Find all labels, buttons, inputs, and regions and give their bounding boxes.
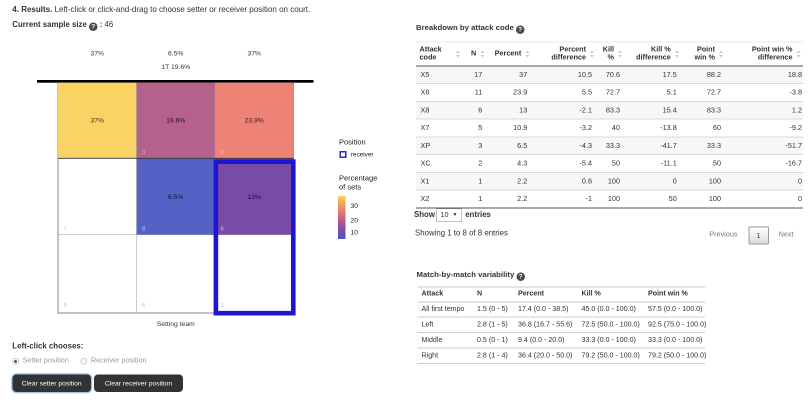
svg-text:37%: 37% xyxy=(247,51,261,58)
svg-text:1: 1 xyxy=(221,303,224,309)
svg-text:2: 2 xyxy=(221,150,224,156)
svg-text:6.5%: 6.5% xyxy=(168,194,183,201)
svg-text:Setting team: Setting team xyxy=(157,321,195,328)
svg-text:6.5%: 6.5% xyxy=(168,51,183,58)
svg-text:1T 19.6%: 1T 19.6% xyxy=(161,64,190,71)
svg-text:37%: 37% xyxy=(90,118,104,125)
svg-text:9: 9 xyxy=(221,227,224,233)
svg-text:3: 3 xyxy=(142,150,145,156)
svg-text:6: 6 xyxy=(142,303,145,309)
svg-text:13%: 13% xyxy=(247,194,261,201)
svg-text:8: 8 xyxy=(142,227,145,233)
svg-text:7: 7 xyxy=(64,227,67,233)
svg-text:23.9%: 23.9% xyxy=(245,118,264,125)
svg-text:5: 5 xyxy=(64,303,67,309)
svg-text:37%: 37% xyxy=(90,51,104,58)
svg-text:19.6%: 19.6% xyxy=(166,118,185,125)
